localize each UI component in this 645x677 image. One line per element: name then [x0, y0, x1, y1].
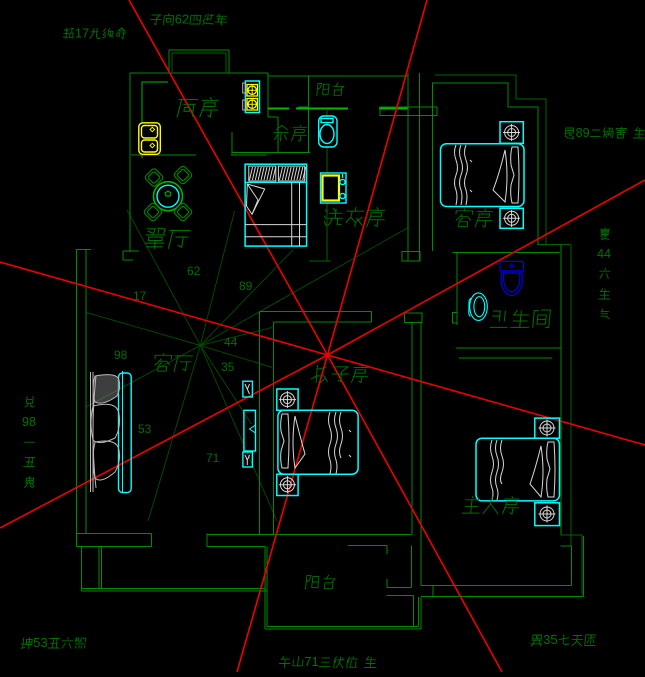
svg-text:53: 53	[138, 422, 152, 436]
svg-text:62: 62	[175, 12, 189, 27]
svg-text:71: 71	[206, 451, 220, 465]
svg-text:62: 62	[187, 264, 201, 278]
svg-text:89: 89	[239, 279, 253, 293]
svg-text:53: 53	[33, 635, 48, 650]
svg-text:98: 98	[114, 348, 128, 362]
svg-text:98: 98	[22, 415, 36, 429]
svg-text:35: 35	[543, 632, 558, 647]
svg-text:71: 71	[304, 654, 319, 669]
svg-text:44: 44	[224, 335, 238, 349]
svg-text:35: 35	[221, 360, 235, 374]
svg-text:44: 44	[597, 247, 611, 261]
svg-text:89: 89	[576, 126, 590, 140]
svg-text:17: 17	[75, 26, 89, 41]
